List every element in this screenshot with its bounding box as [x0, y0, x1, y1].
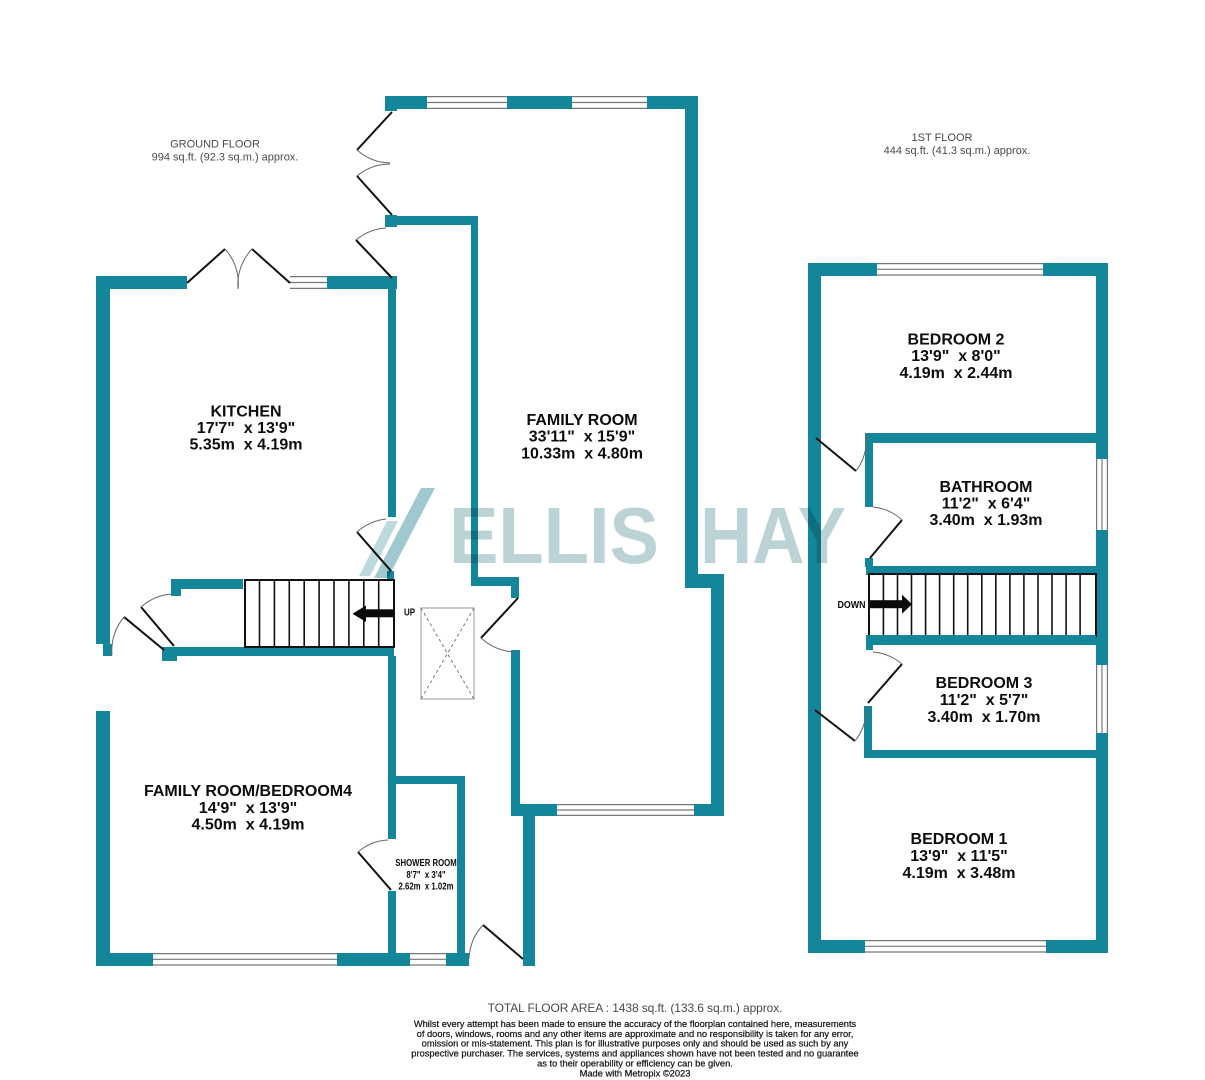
svg-text:omission or mis-statement. Thi: omission or mis-statement. This plan is …	[422, 1039, 849, 1049]
svg-text:KITCHEN: KITCHEN	[210, 404, 281, 421]
svg-text:3.40m x 1.93m: 3.40m x 1.93m	[930, 512, 1043, 529]
svg-text:11'2" x 6'4": 11'2" x 6'4"	[942, 496, 1031, 513]
svg-text:Whilst every attempt has been: Whilst every attempt has been made to en…	[414, 1019, 857, 1029]
svg-text:994 sq.ft. (92.3 sq.m.) approx: 994 sq.ft. (92.3 sq.m.) approx.	[152, 152, 299, 164]
svg-text:as to their operability or eff: as to their operability or efficiency ca…	[537, 1059, 733, 1069]
svg-text:11'2" x 5'7": 11'2" x 5'7"	[940, 692, 1029, 709]
svg-text:5.35m x 4.19m: 5.35m x 4.19m	[190, 437, 303, 454]
svg-text:4.19m x 3.48m: 4.19m x 3.48m	[903, 865, 1016, 882]
svg-text:Made with Metropix ©2023: Made with Metropix ©2023	[580, 1068, 691, 1078]
svg-text:HAY: HAY	[700, 491, 846, 580]
svg-text:BEDROOM 2: BEDROOM 2	[908, 331, 1005, 348]
svg-text:DOWN: DOWN	[838, 600, 866, 612]
svg-text:3.40m x 1.70m: 3.40m x 1.70m	[928, 709, 1041, 726]
svg-text:SHOWER ROOM: SHOWER ROOM	[395, 857, 456, 868]
svg-text:4.19m x 2.44m: 4.19m x 2.44m	[900, 365, 1013, 382]
svg-text:33'11" x 15'9": 33'11" x 15'9"	[529, 429, 635, 446]
svg-text:TOTAL FLOOR AREA : 1438 sq.ft.: TOTAL FLOOR AREA : 1438 sq.ft. (133.6 sq…	[488, 1001, 783, 1015]
svg-text:GROUND FLOOR: GROUND FLOOR	[170, 138, 260, 150]
svg-text:1ST FLOOR: 1ST FLOOR	[912, 132, 973, 144]
svg-text:13'9" x 8'0": 13'9" x 8'0"	[911, 348, 1001, 365]
svg-text:BEDROOM 1: BEDROOM 1	[911, 831, 1008, 848]
svg-text:UP: UP	[404, 607, 415, 618]
svg-text:444 sq.ft. (41.3 sq.m.) approx: 444 sq.ft. (41.3 sq.m.) approx.	[884, 145, 1031, 157]
svg-text:BEDROOM 3: BEDROOM 3	[936, 675, 1033, 692]
svg-text:BATHROOM: BATHROOM	[939, 479, 1032, 496]
svg-text:FAMILY ROOM/BEDROOM4: FAMILY ROOM/BEDROOM4	[144, 783, 352, 800]
svg-text:8'7" x 3'4": 8'7" x 3'4"	[406, 869, 445, 880]
svg-text:prospective purchaser. The ser: prospective purchaser. The services, sys…	[411, 1049, 858, 1059]
svg-text:4.50m x 4.19m: 4.50m x 4.19m	[192, 817, 305, 834]
svg-text:ELLIS: ELLIS	[449, 491, 659, 580]
svg-text:17'7" x 13'9": 17'7" x 13'9"	[197, 420, 295, 437]
svg-text:13'9" x 11'5": 13'9" x 11'5"	[910, 848, 1008, 865]
svg-text:FAMILY ROOM: FAMILY ROOM	[526, 412, 637, 429]
svg-text:14'9" x 13'9": 14'9" x 13'9"	[199, 800, 297, 817]
svg-text:2.62m x 1.02m: 2.62m x 1.02m	[399, 881, 454, 892]
svg-text:10.33m x 4.80m: 10.33m x 4.80m	[521, 445, 643, 462]
svg-text:of doors, windows, rooms and a: of doors, windows, rooms and any other i…	[417, 1029, 854, 1039]
